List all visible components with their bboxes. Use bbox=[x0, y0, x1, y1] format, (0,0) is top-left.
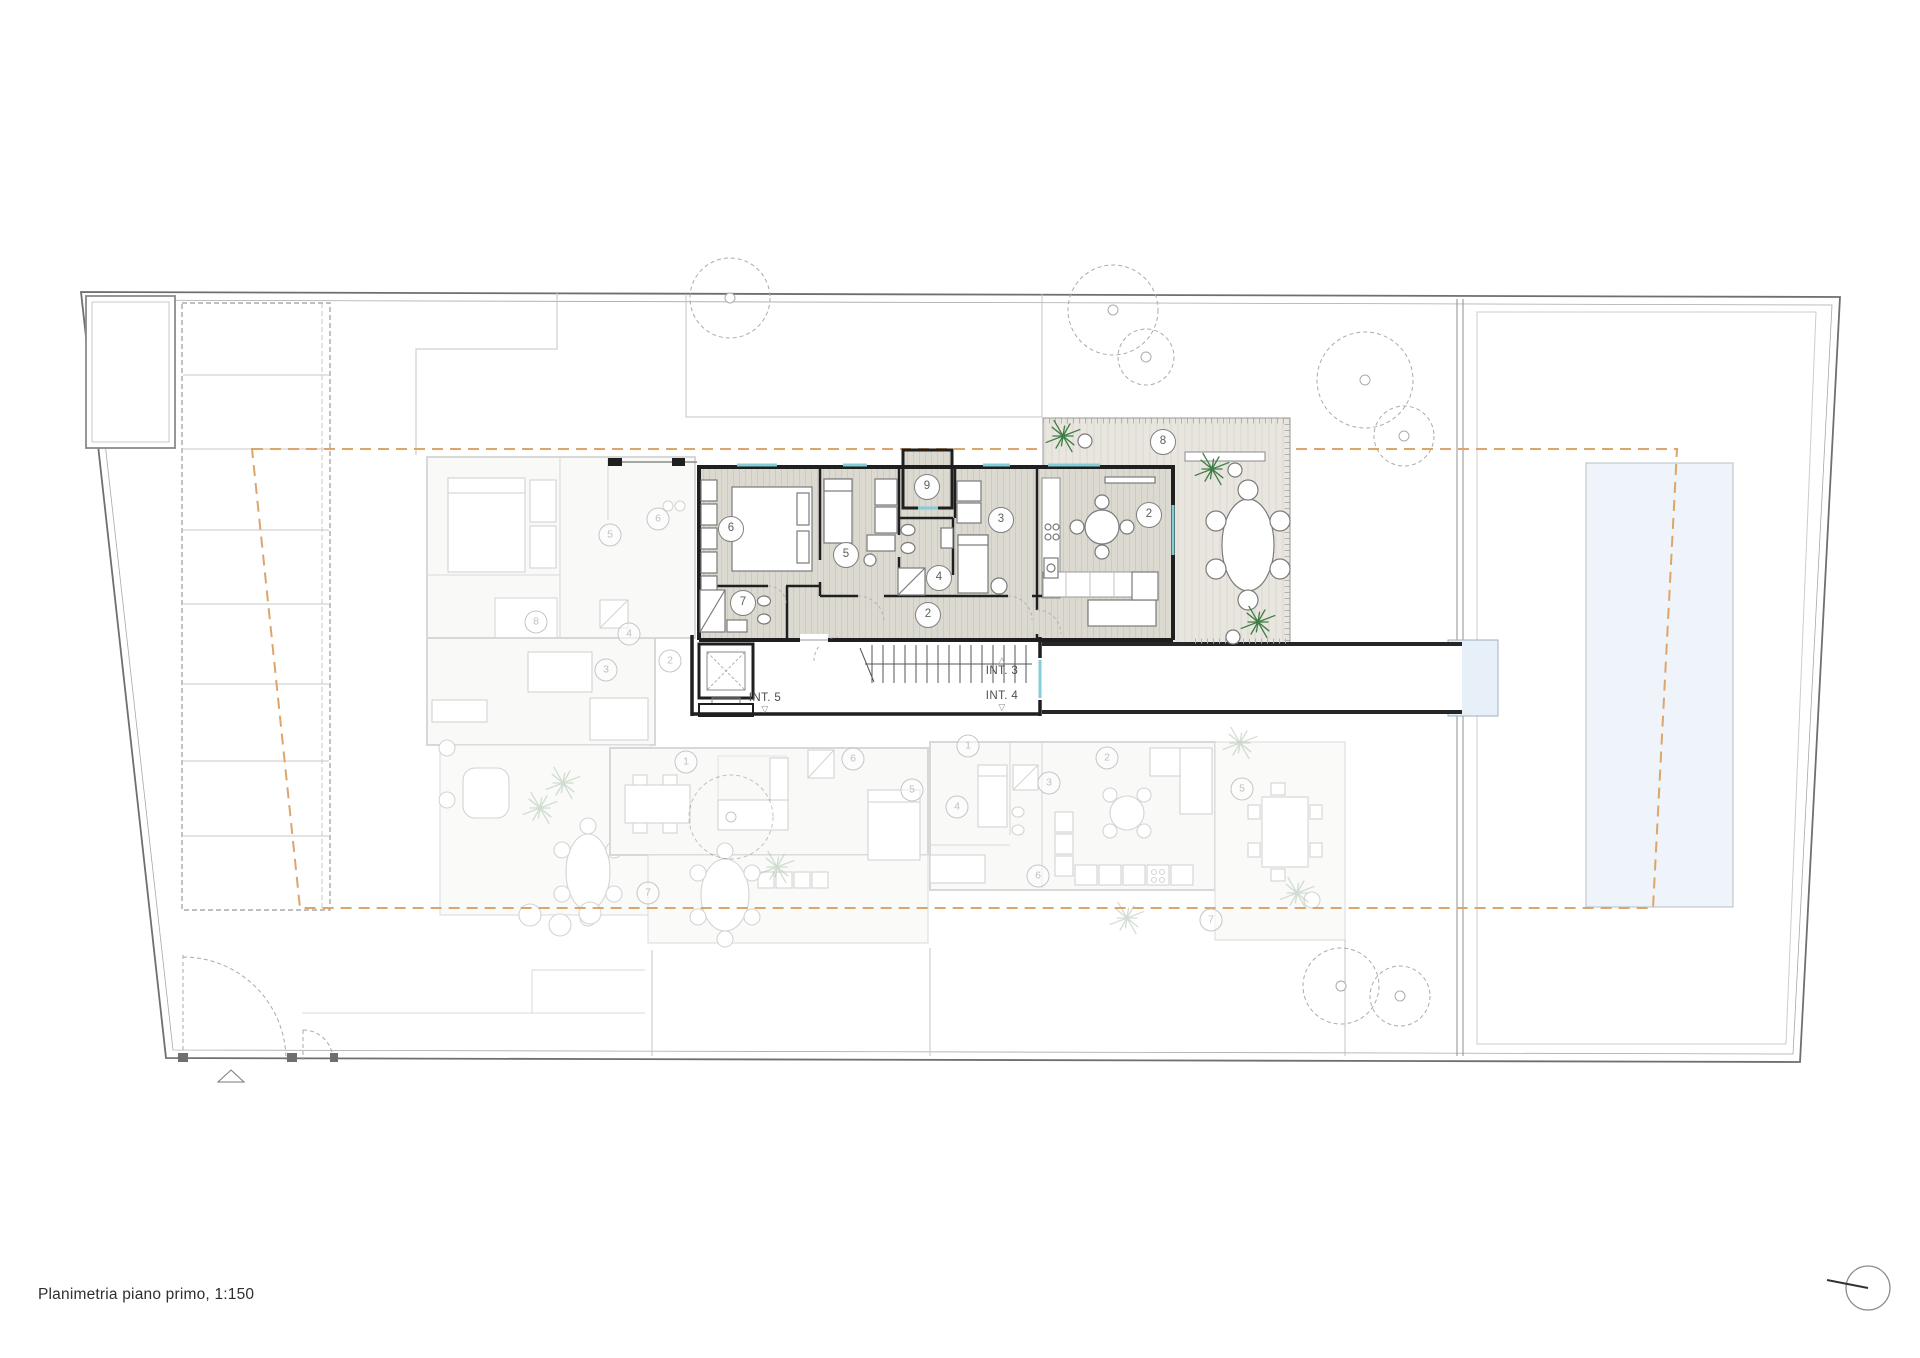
unit-label-int5: INT. 5▽ bbox=[749, 692, 781, 714]
room-marker: 1 bbox=[675, 751, 698, 774]
room-marker: 4 bbox=[618, 623, 641, 646]
room-marker: 8 bbox=[525, 611, 548, 634]
room-marker: 4 bbox=[926, 565, 952, 591]
room-marker: 5 bbox=[901, 779, 924, 802]
room-marker: 2 bbox=[915, 602, 941, 628]
room-marker: 2 bbox=[1096, 747, 1119, 770]
tree-canopy-icon bbox=[690, 258, 770, 338]
room-marker: 3 bbox=[1038, 772, 1061, 795]
tree-canopy-icon bbox=[1118, 329, 1174, 385]
parking-strip bbox=[182, 303, 330, 910]
tree-canopy-icon bbox=[1370, 966, 1430, 1026]
room-marker: 6 bbox=[647, 508, 670, 531]
tree-canopy-icon bbox=[1317, 332, 1413, 428]
unit-label-int4: INT. 4▽ bbox=[986, 690, 1018, 712]
entrance-gate bbox=[178, 955, 338, 1082]
room-marker: 5 bbox=[599, 524, 622, 547]
room-marker: 5 bbox=[1231, 778, 1254, 801]
room-marker: 3 bbox=[595, 659, 618, 682]
room-marker: 7 bbox=[1200, 909, 1223, 932]
floor-plan-page: Planimetria piano primo, 1:150 △INT. 3IN… bbox=[0, 0, 1920, 1358]
direction-triangle-icon: ▽ bbox=[749, 704, 781, 714]
room-marker: 6 bbox=[1027, 865, 1050, 888]
unit-label-text: INT. 3 bbox=[986, 665, 1018, 677]
entrance-triangle-icon bbox=[218, 1070, 244, 1082]
tree-canopy-icon bbox=[1068, 265, 1158, 355]
boundary-notch bbox=[86, 296, 175, 448]
tree-canopy-icon bbox=[1374, 406, 1434, 466]
direction-triangle-icon: △ bbox=[986, 655, 1018, 665]
pool bbox=[1586, 463, 1733, 907]
tree-canopy-icon bbox=[1303, 948, 1379, 1024]
room-marker: 4 bbox=[946, 796, 969, 819]
unit-label-int3: △INT. 3 bbox=[986, 655, 1018, 677]
room-marker: 9 bbox=[914, 474, 940, 500]
room-marker: 2 bbox=[659, 650, 682, 673]
room-marker: 5 bbox=[833, 542, 859, 568]
room-marker: 7 bbox=[730, 590, 756, 616]
room-marker: 3 bbox=[988, 507, 1014, 533]
room-marker: 8 bbox=[1150, 429, 1176, 455]
planter-icon bbox=[1226, 630, 1240, 644]
room-marker: 6 bbox=[718, 516, 744, 542]
corridor-bridge bbox=[1042, 640, 1498, 716]
unit-label-text: INT. 4 bbox=[986, 690, 1018, 702]
room-marker: 6 bbox=[842, 748, 865, 771]
room-marker: 2 bbox=[1136, 502, 1162, 528]
direction-triangle-icon: ▽ bbox=[986, 702, 1018, 712]
floor-plan-drawing bbox=[0, 0, 1920, 1358]
north-indicator-icon bbox=[1827, 1266, 1890, 1310]
room-marker: 1 bbox=[957, 735, 980, 758]
page-title: Planimetria piano primo, 1:150 bbox=[38, 1286, 254, 1304]
room-marker: 7 bbox=[637, 882, 660, 905]
planter-icon bbox=[1078, 434, 1092, 448]
planter-icon bbox=[1228, 463, 1242, 477]
unit-label-text: INT. 5 bbox=[749, 692, 781, 704]
